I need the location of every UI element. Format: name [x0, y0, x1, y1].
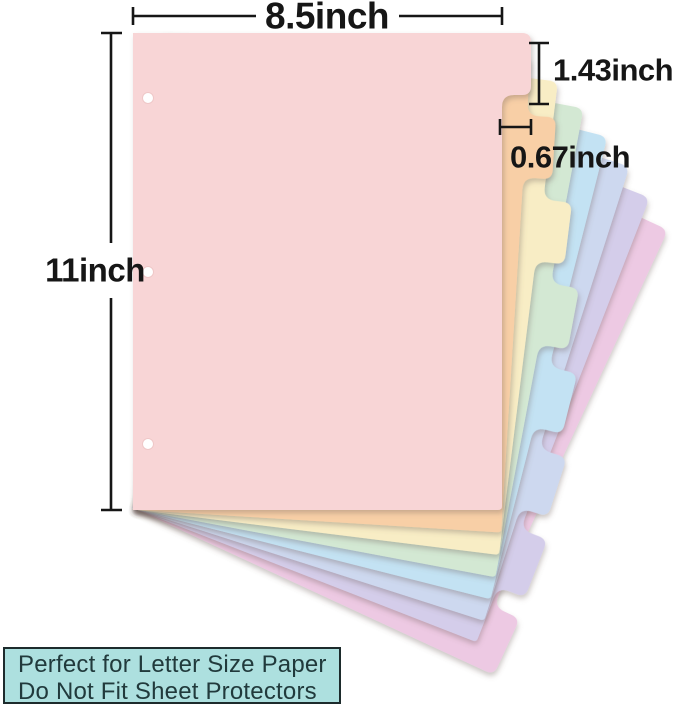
width-dimension-label: 8.5inch: [265, 0, 389, 37]
height-dimension-label: 11inch: [45, 252, 145, 289]
punch-hole-top: [143, 93, 154, 104]
note-box: Perfect for Letter Size Paper Do Not Fit…: [3, 647, 341, 704]
product-diagram-canvas: 8.5inch 11inch 1.43inch 0.67inch Perfect…: [0, 0, 679, 711]
tab-height-dimension-label: 1.43inch: [553, 53, 673, 88]
tab-width-dimension-label: 0.67inch: [510, 140, 630, 175]
note-line-1: Perfect for Letter Size Paper: [18, 651, 339, 678]
punch-hole-bottom: [143, 439, 154, 450]
note-line-2: Do Not Fit Sheet Protectors: [18, 678, 339, 705]
divider-diagram: 8.5inch 11inch 1.43inch 0.67inch: [0, 0, 679, 711]
divider-sheet-pink: [133, 33, 531, 510]
divider-sheet-stack: [133, 33, 679, 675]
